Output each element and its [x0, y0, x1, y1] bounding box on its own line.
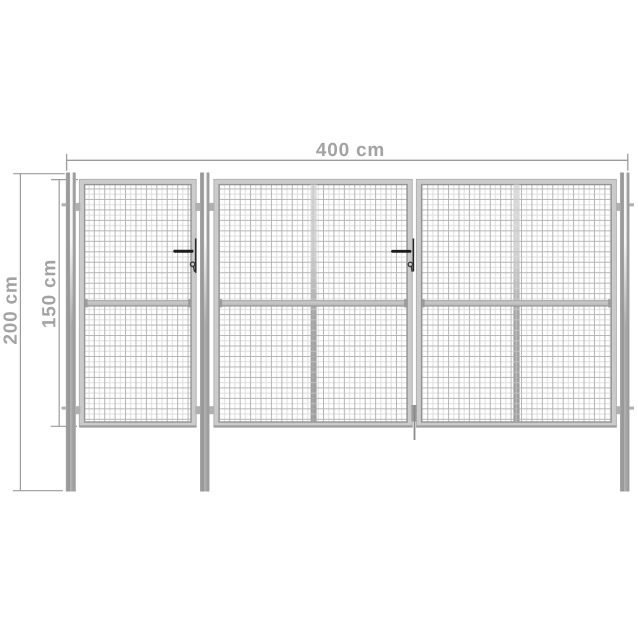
svg-text:150 cm: 150 cm	[39, 259, 60, 328]
svg-text:200 cm: 200 cm	[1, 275, 22, 344]
svg-text:400 cm: 400 cm	[316, 140, 385, 161]
